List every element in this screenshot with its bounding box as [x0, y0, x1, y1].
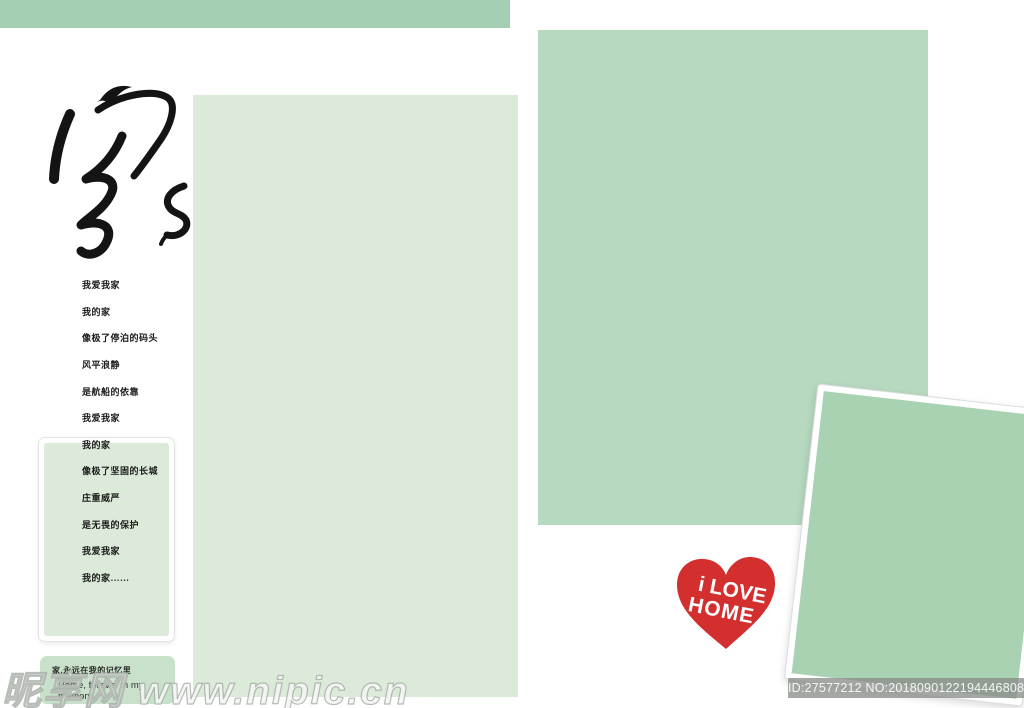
photo-placeholder-center	[193, 95, 518, 697]
poem-line: 是航船的依靠	[82, 386, 158, 399]
poem-text-block: 我爱我家 我的家 像极了停泊的码头 风平浪静 是航船的依靠 我爱我家 我的家 像…	[82, 266, 158, 598]
stock-id-watermark: ID:27577212 NO:20180901221944468084	[788, 678, 1024, 698]
poem-line: 我爱我家	[82, 412, 158, 425]
jia-calligraphy-artwork: 家	[42, 78, 202, 268]
i-love-home-heart-badge: i LOVE HOME	[670, 552, 782, 656]
album-template-page: 家 我爱我家 我的家 像极了停泊的码头 风平浪静 是航船的依靠 我爱	[0, 0, 1024, 708]
nipic-site-watermark: 昵享网 www.nipic.cn	[2, 660, 410, 708]
heart-icon: i LOVE HOME	[670, 552, 782, 656]
poem-line: 我的家	[82, 306, 158, 319]
poem-line: 庄重威严	[82, 492, 158, 505]
poem-line: 我的家……	[82, 572, 158, 585]
poem-line: 像极了停泊的码头	[82, 332, 158, 345]
header-accent-bar	[0, 0, 510, 28]
poem-line: 像极了坚固的长城	[82, 465, 158, 478]
poem-line: 是无畏的保护	[82, 519, 158, 532]
jia-calligraphy-icon	[42, 78, 202, 268]
photo-placeholder-tilted-framed	[784, 383, 1024, 706]
poem-line: 风平浪静	[82, 359, 158, 372]
poem-line: 我的家	[82, 439, 158, 452]
photo-placeholder-tilted-fill	[792, 391, 1024, 699]
poem-line: 我爱我家	[82, 545, 158, 558]
poem-line: 我爱我家	[82, 279, 158, 292]
